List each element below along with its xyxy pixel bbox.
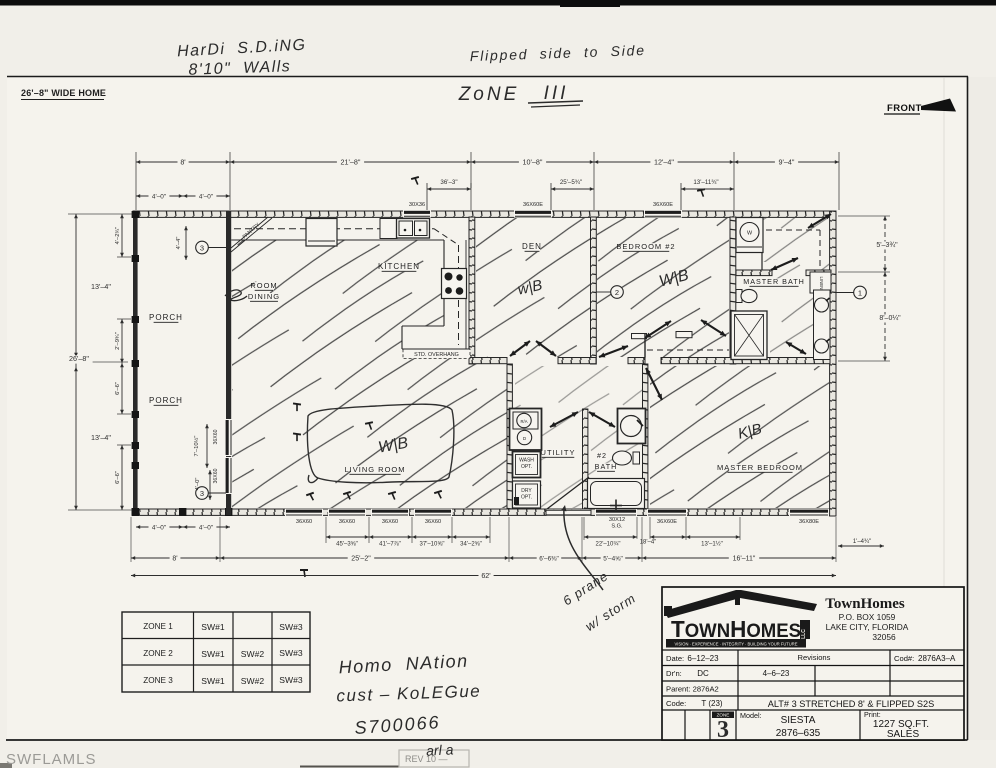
svg-text:DINING: DINING bbox=[248, 292, 280, 301]
svg-text:36X60E: 36X60E bbox=[523, 202, 543, 208]
svg-text:4–6–23: 4–6–23 bbox=[763, 669, 790, 678]
svg-text:R/A: R/A bbox=[521, 419, 528, 424]
svg-text:13'–4": 13'–4" bbox=[91, 433, 111, 442]
svg-text:Model:: Model: bbox=[740, 711, 762, 720]
svg-text:12'–4": 12'–4" bbox=[654, 158, 674, 167]
svg-text:Date:: Date: bbox=[666, 654, 684, 663]
svg-text:LIVING ROOM: LIVING ROOM bbox=[344, 465, 405, 474]
svg-text:36X60: 36X60 bbox=[382, 519, 398, 525]
svg-text:ROOM: ROOM bbox=[250, 281, 277, 290]
svg-text:9'–4": 9'–4" bbox=[779, 158, 795, 167]
svg-text:SW#3: SW#3 bbox=[279, 675, 303, 685]
svg-text:ZONE 1: ZONE 1 bbox=[143, 622, 173, 631]
svg-text:2876–635: 2876–635 bbox=[776, 728, 821, 739]
svg-text:8'–0¼": 8'–0¼" bbox=[879, 315, 901, 322]
svg-text:III: III bbox=[544, 83, 569, 104]
svg-text:4'–0": 4'–0" bbox=[152, 525, 166, 532]
svg-text:21'–8": 21'–8" bbox=[341, 158, 361, 167]
svg-text:OPT.: OPT. bbox=[521, 495, 532, 501]
svg-text:5'–4⅝": 5'–4⅝" bbox=[603, 556, 622, 563]
svg-text:BATH: BATH bbox=[595, 462, 618, 471]
svg-text:STD. OVERHANG: STD. OVERHANG bbox=[414, 352, 459, 358]
svg-text:36X60: 36X60 bbox=[213, 468, 219, 483]
svg-text:25'–2": 25'–2" bbox=[351, 556, 371, 563]
svg-text:26'–8" WIDE HOME: 26'–8" WIDE HOME bbox=[21, 88, 106, 98]
svg-text:#2: #2 bbox=[597, 451, 607, 460]
svg-text:13'–11¾": 13'–11¾" bbox=[693, 179, 718, 186]
svg-text:LAKE CITY, FLORIDA: LAKE CITY, FLORIDA bbox=[826, 622, 909, 632]
svg-text:T (23): T (23) bbox=[701, 699, 723, 708]
svg-text:S.G.: S.G. bbox=[611, 524, 623, 530]
svg-text:2876A3–A: 2876A3–A bbox=[918, 654, 956, 663]
svg-text:DEN: DEN bbox=[522, 242, 542, 251]
svg-text:2'–9¾": 2'–9¾" bbox=[115, 332, 121, 350]
svg-text:SW#3: SW#3 bbox=[279, 622, 303, 632]
svg-text:LINEN: LINEN bbox=[819, 277, 824, 290]
svg-text:SW#1: SW#1 bbox=[201, 622, 225, 632]
svg-text:36X60: 36X60 bbox=[296, 519, 312, 525]
svg-text:PORCH: PORCH bbox=[149, 313, 183, 322]
svg-text:30X12: 30X12 bbox=[609, 517, 625, 523]
svg-text:DC: DC bbox=[697, 669, 709, 678]
svg-text:SWFLAMLS: SWFLAMLS bbox=[6, 751, 97, 768]
svg-text:1'–4¾": 1'–4¾" bbox=[853, 539, 871, 545]
svg-text:SW#3: SW#3 bbox=[279, 648, 303, 658]
svg-text:4'–0": 4'–0" bbox=[199, 525, 213, 532]
svg-text:VISION · EXPERIENCE · INTEGRIT: VISION · EXPERIENCE · INTEGRITY · BUILDI… bbox=[675, 641, 798, 646]
svg-text:PORCH: PORCH bbox=[149, 396, 183, 405]
svg-text:BEDROOM #2: BEDROOM #2 bbox=[616, 242, 675, 251]
svg-text:SW#2: SW#2 bbox=[241, 649, 265, 659]
svg-text:Revisions: Revisions bbox=[798, 653, 831, 662]
svg-text:KITCHEN: KITCHEN bbox=[378, 262, 420, 271]
svg-text:ALT# 3 STRETCHED 8' & FLIPPED: ALT# 3 STRETCHED 8' & FLIPPED S2S bbox=[768, 699, 935, 709]
svg-text:MASTER BATH: MASTER BATH bbox=[743, 277, 805, 286]
svg-text:SW#2: SW#2 bbox=[241, 676, 265, 686]
svg-text:SALES: SALES bbox=[887, 729, 920, 740]
svg-text:SW#1: SW#1 bbox=[201, 676, 225, 686]
svg-text:34'–2⅝": 34'–2⅝" bbox=[460, 542, 482, 548]
svg-text:45'–3⅝": 45'–3⅝" bbox=[336, 542, 358, 548]
svg-text:4'–0": 4'–0" bbox=[199, 194, 213, 201]
svg-text:13'–4": 13'–4" bbox=[91, 282, 111, 291]
svg-text:DRY: DRY bbox=[521, 488, 532, 494]
svg-text:ZONE 2: ZONE 2 bbox=[143, 649, 173, 658]
svg-text:FRONT: FRONT bbox=[887, 103, 922, 114]
svg-text:Dr'n:: Dr'n: bbox=[666, 669, 682, 678]
svg-text:37'–10⅝": 37'–10⅝" bbox=[420, 542, 445, 548]
svg-text:6'–6⅜": 6'–6⅜" bbox=[539, 556, 558, 563]
svg-text:arl a: arl a bbox=[426, 741, 454, 758]
svg-text:6'–6": 6'–6" bbox=[115, 471, 121, 484]
svg-text:MASTER BEDROOM: MASTER BEDROOM bbox=[717, 463, 803, 472]
svg-text:16'–11": 16'–11" bbox=[733, 556, 756, 563]
svg-text:36X60: 36X60 bbox=[425, 519, 441, 525]
svg-text:6–12–23: 6–12–23 bbox=[687, 654, 719, 663]
svg-text:WASH: WASH bbox=[519, 458, 534, 464]
svg-text:TownHomes: TownHomes bbox=[825, 596, 905, 612]
svg-text:4'–2¾": 4'–2¾" bbox=[115, 227, 121, 245]
svg-text:Parent: 2876A2: Parent: 2876A2 bbox=[666, 685, 719, 694]
svg-text:ZONE 3: ZONE 3 bbox=[143, 676, 173, 685]
svg-text:4'–0": 4'–0" bbox=[195, 478, 201, 491]
svg-text:8'10" WAlls: 8'10" WAlls bbox=[188, 58, 291, 79]
svg-text:62': 62' bbox=[481, 571, 491, 580]
svg-text:8': 8' bbox=[172, 556, 177, 563]
svg-text:LLC: LLC bbox=[801, 629, 807, 639]
svg-text:10'–8": 10'–8" bbox=[523, 158, 543, 167]
svg-text:5'–3¾": 5'–3¾" bbox=[876, 242, 898, 249]
svg-text:2: 2 bbox=[615, 288, 619, 297]
svg-text:26'–8": 26'–8" bbox=[69, 354, 89, 363]
svg-text:22'–10¾": 22'–10¾" bbox=[596, 542, 621, 548]
svg-text:P.O. BOX 1059: P.O. BOX 1059 bbox=[839, 612, 896, 622]
svg-text:4'–4": 4'–4" bbox=[176, 237, 182, 250]
svg-text:30X36: 30X36 bbox=[409, 202, 425, 208]
svg-text:32056: 32056 bbox=[872, 632, 896, 642]
svg-text:1: 1 bbox=[858, 288, 862, 297]
svg-text:Cod#:: Cod#: bbox=[894, 654, 914, 663]
svg-text:SIESTA: SIESTA bbox=[781, 715, 816, 726]
svg-text:UTILITY: UTILITY bbox=[541, 448, 576, 457]
svg-text:25'–5¾": 25'–5¾" bbox=[560, 179, 582, 186]
svg-text:6'–6": 6'–6" bbox=[115, 382, 121, 395]
svg-text:3: 3 bbox=[717, 717, 729, 743]
svg-text:3: 3 bbox=[200, 243, 204, 252]
svg-text:36X60E: 36X60E bbox=[657, 519, 677, 525]
svg-text:ZoNE: ZoNE bbox=[458, 84, 520, 105]
svg-text:36X60E: 36X60E bbox=[653, 202, 673, 208]
svg-text:36X60: 36X60 bbox=[339, 519, 355, 525]
svg-text:7'–10½": 7'–10½" bbox=[193, 436, 200, 457]
svg-text:4'–0": 4'–0" bbox=[152, 194, 166, 201]
svg-text:SW#1: SW#1 bbox=[201, 649, 225, 659]
svg-text:OPT.: OPT. bbox=[521, 464, 532, 470]
svg-text:13'–1½": 13'–1½" bbox=[701, 541, 723, 548]
svg-text:36X60: 36X60 bbox=[213, 429, 219, 444]
svg-text:41'–7⅞": 41'–7⅞" bbox=[379, 542, 401, 548]
svg-text:36'–3": 36'–3" bbox=[440, 179, 457, 186]
svg-text:Print:: Print: bbox=[864, 710, 881, 719]
svg-text:Code:: Code: bbox=[666, 699, 686, 708]
svg-text:36X80E: 36X80E bbox=[799, 519, 819, 525]
svg-text:8': 8' bbox=[180, 158, 186, 167]
